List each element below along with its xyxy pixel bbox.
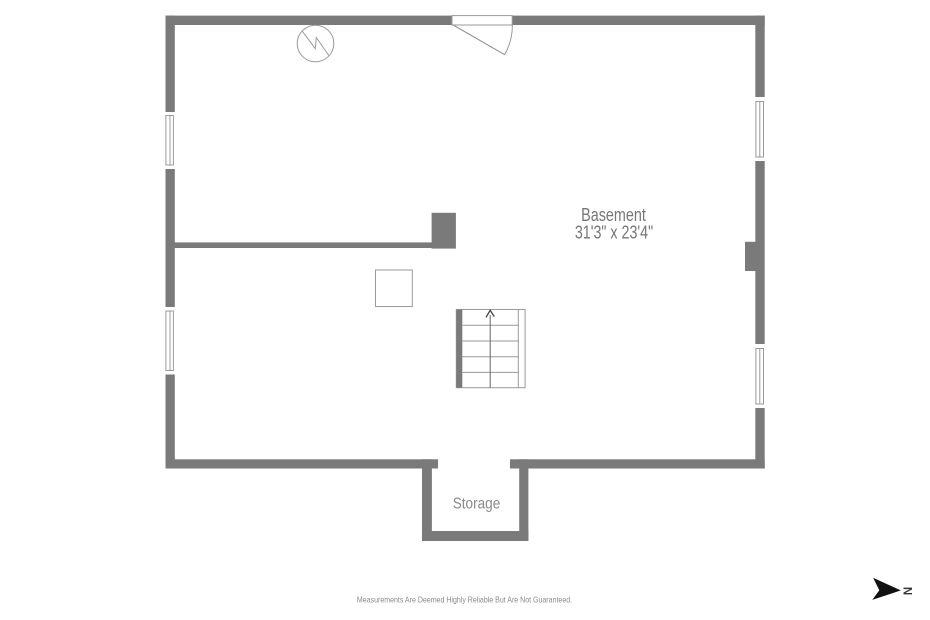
- svg-text:N: N: [901, 587, 913, 595]
- svg-text:Measurements Are Deemed Highly: Measurements Are Deemed Highly Reliable …: [357, 595, 572, 605]
- svg-text:31'3" x 23'4": 31'3" x 23'4": [575, 222, 653, 243]
- svg-text:Storage: Storage: [453, 495, 501, 512]
